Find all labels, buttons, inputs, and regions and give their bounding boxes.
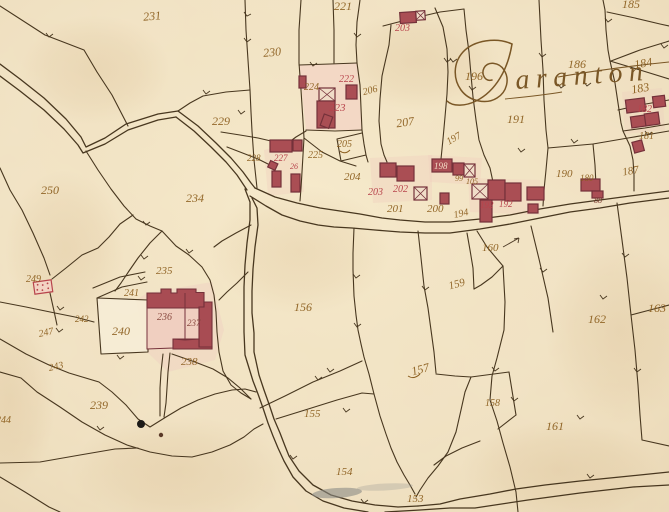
svg-text:191: 191 (507, 112, 525, 126)
svg-text:222: 222 (339, 74, 354, 85)
svg-text:229: 229 (212, 114, 230, 128)
svg-text:237: 237 (187, 318, 201, 328)
svg-text:185: 185 (622, 0, 640, 11)
svg-text:230: 230 (263, 44, 282, 60)
svg-text:180: 180 (580, 173, 594, 183)
svg-text:249: 249 (26, 274, 41, 285)
svg-text:204: 204 (344, 171, 361, 183)
svg-text:156: 156 (294, 300, 312, 314)
svg-text:241: 241 (124, 288, 139, 299)
svg-text:162: 162 (588, 312, 606, 326)
svg-text:236: 236 (157, 312, 172, 323)
svg-text:158: 158 (485, 398, 500, 409)
svg-text:192: 192 (499, 199, 513, 209)
svg-text:238: 238 (181, 356, 198, 368)
svg-text:205: 205 (337, 139, 352, 150)
svg-text:161: 161 (546, 419, 564, 433)
svg-text:198: 198 (434, 161, 448, 171)
svg-text:231: 231 (143, 8, 162, 24)
svg-text:224: 224 (304, 82, 319, 93)
svg-text:163: 163 (648, 301, 666, 315)
svg-text:203: 203 (368, 187, 383, 198)
svg-text:228: 228 (247, 153, 261, 163)
svg-text:227: 227 (274, 153, 288, 163)
svg-text:202: 202 (393, 184, 408, 195)
svg-text:223: 223 (329, 102, 346, 114)
svg-text:201: 201 (387, 203, 404, 215)
svg-text:105: 105 (466, 177, 478, 186)
svg-text:155: 155 (304, 408, 321, 420)
svg-text:240: 240 (112, 324, 130, 338)
svg-text:190: 190 (556, 168, 573, 180)
svg-text:181: 181 (639, 131, 654, 142)
svg-text:221: 221 (334, 0, 352, 13)
svg-text:250: 250 (41, 183, 59, 197)
svg-text:196: 196 (465, 69, 483, 83)
svg-text:225: 225 (308, 150, 323, 161)
svg-text:200: 200 (427, 203, 444, 215)
svg-text:88: 88 (594, 196, 602, 205)
svg-text:99: 99 (455, 174, 463, 183)
svg-text:26: 26 (290, 162, 298, 171)
svg-text:153: 153 (407, 493, 424, 505)
svg-text:154: 154 (336, 466, 353, 478)
svg-text:239: 239 (90, 398, 108, 412)
svg-text:203: 203 (395, 23, 410, 34)
svg-text:242: 242 (75, 314, 89, 324)
svg-text:244: 244 (0, 415, 11, 426)
svg-text:235: 235 (156, 265, 173, 277)
svg-text:234: 234 (186, 191, 204, 205)
svg-text:160: 160 (482, 242, 499, 254)
svg-text:207: 207 (395, 114, 416, 131)
svg-text:192: 192 (480, 200, 494, 210)
svg-text:182: 182 (637, 104, 652, 115)
